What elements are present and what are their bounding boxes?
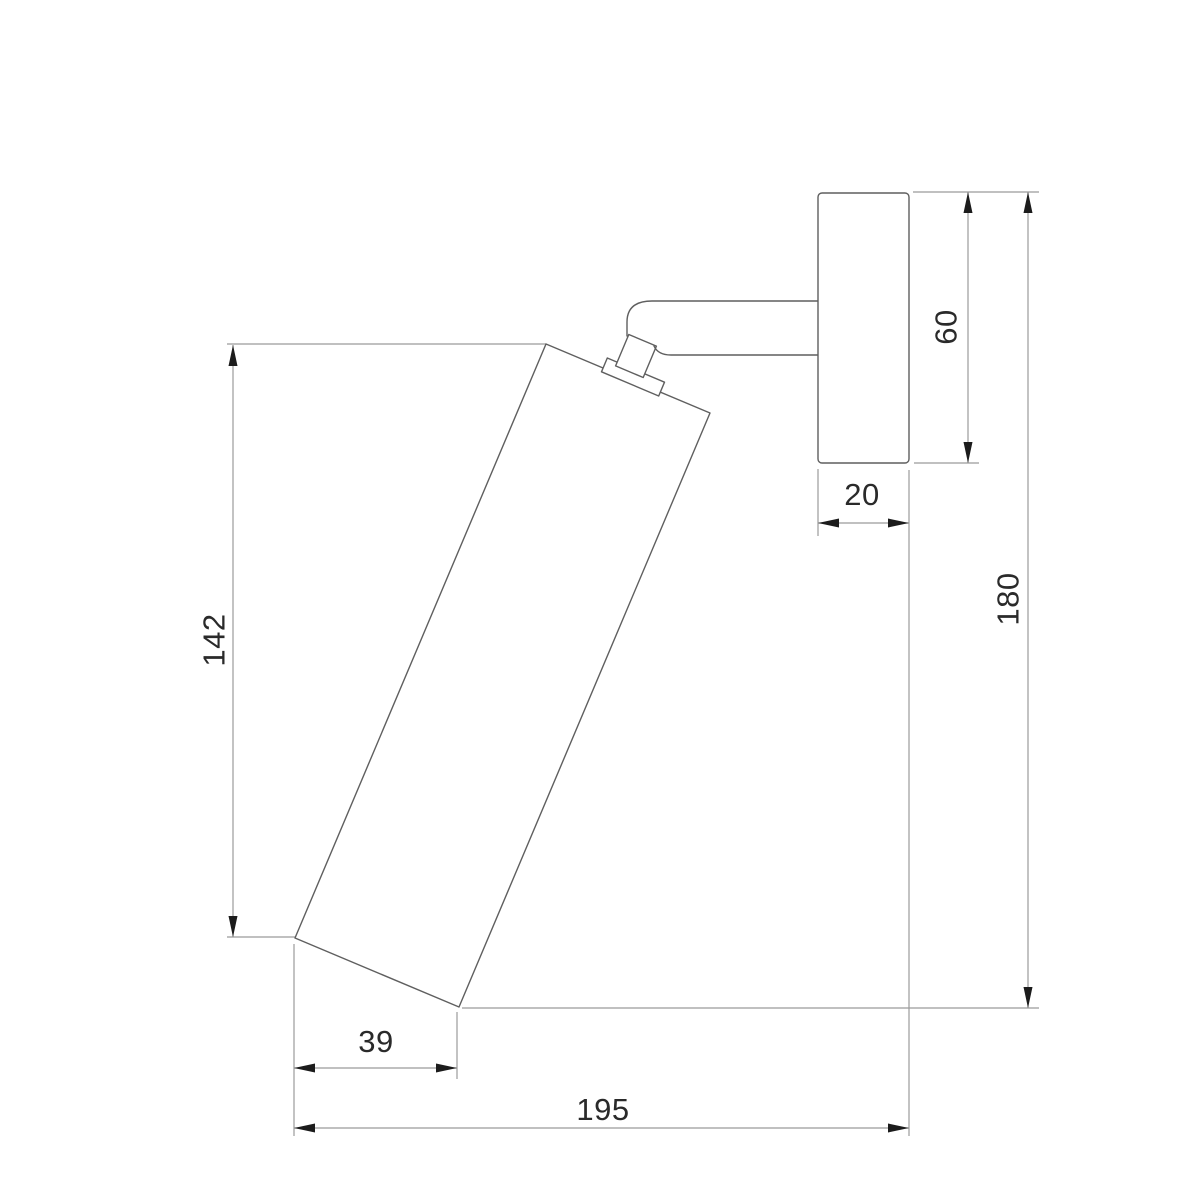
dimension-label-142: 142 [197,613,232,666]
drawing-page: 142 60 180 20 39 [0,0,1200,1200]
dimension-label-20: 20 [844,477,879,512]
arrowhead-60-bottom [964,442,973,463]
dimension-label-60: 60 [929,309,964,344]
dimension-60: 60 [929,192,973,463]
arrowhead-180-top [1024,192,1033,213]
lamp-body [295,344,710,1007]
dimension-label-180: 180 [991,572,1026,625]
arrowhead-39-right [436,1064,457,1073]
wall-plate [818,193,909,463]
arrowhead-180-bottom [1024,987,1033,1008]
dimension-195: 195 [294,1092,909,1133]
arrowhead-39-left [294,1064,315,1073]
arrowhead-142-bottom [229,916,238,937]
dimension-20: 20 [818,477,909,528]
arrowhead-20-left [818,519,839,528]
spotlight-fixture [295,193,909,1007]
technical-drawing-canvas: 142 60 180 20 39 [0,0,1200,1200]
extension-lines [227,192,1039,1136]
arrowhead-142-top [229,345,238,366]
arrowhead-20-right [888,519,909,528]
arrowhead-195-left [294,1124,315,1133]
arrowhead-60-top [964,192,973,213]
dimension-39: 39 [294,1024,457,1073]
arrowhead-195-right [888,1124,909,1133]
dimension-180: 180 [991,192,1033,1008]
dimension-142: 142 [197,345,238,937]
dimension-label-195: 195 [576,1092,629,1127]
dimension-label-39: 39 [358,1024,393,1059]
